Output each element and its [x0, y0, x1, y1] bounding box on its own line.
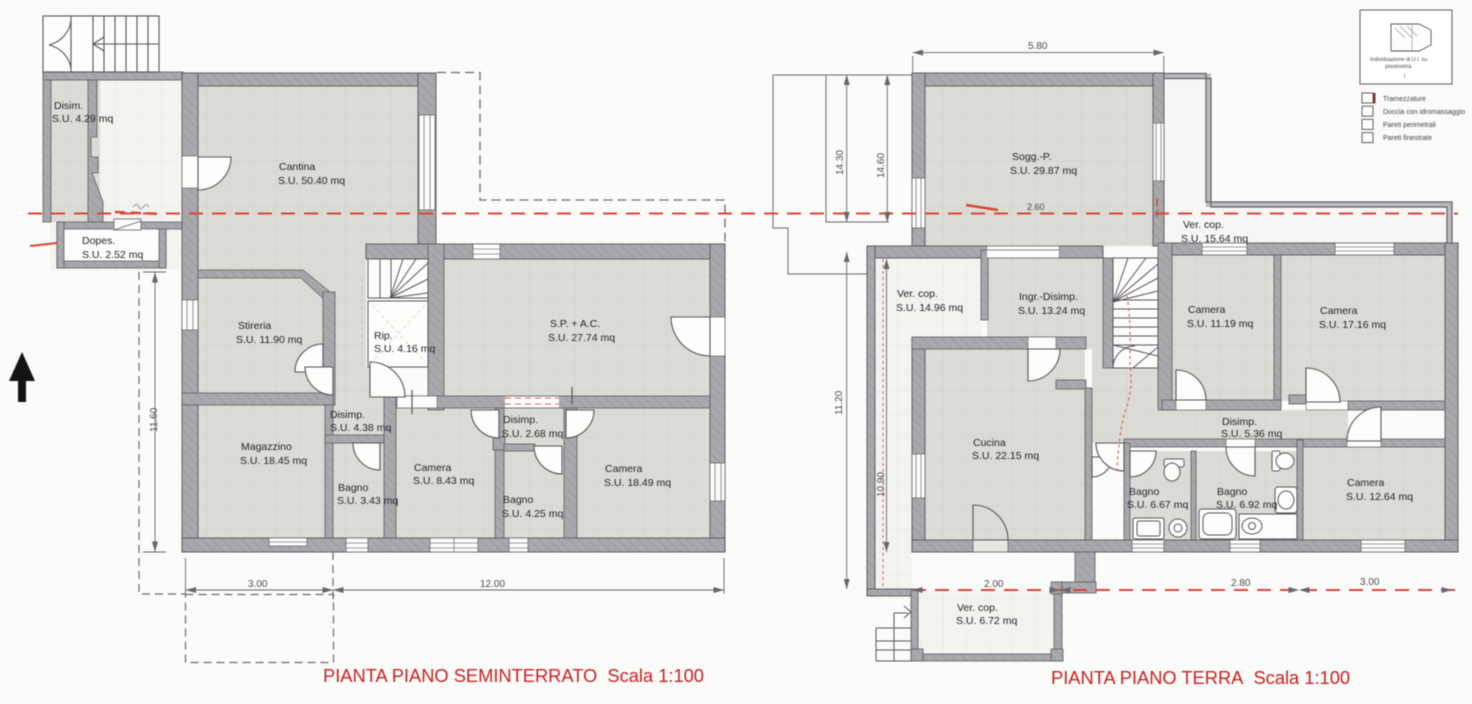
svg-text:S.U. 29.87 mq: S.U. 29.87 mq: [1010, 165, 1077, 177]
svg-text:S.U. 4.29 mq: S.U. 4.29 mq: [52, 113, 113, 125]
svg-text:S.P. + A.C.: S.P. + A.C.: [550, 318, 600, 330]
svg-text:Ingr.-Disimp.: Ingr.-Disimp.: [1019, 291, 1078, 303]
svg-text:S.U. 6.92 mq: S.U. 6.92 mq: [1216, 499, 1277, 511]
svg-text:Camera: Camera: [1188, 304, 1226, 316]
svg-text:10.90: 10.90: [876, 472, 887, 497]
svg-text:S.U. 18.49 mq: S.U. 18.49 mq: [604, 477, 671, 489]
svg-text:S.U. 2.68 mq: S.U. 2.68 mq: [502, 428, 563, 440]
svg-text:planimetria: planimetria: [1385, 64, 1411, 70]
svg-text:PIANTA PIANO SEMINTERRATO Sca: PIANTA PIANO SEMINTERRATO Scala 1:100: [323, 665, 704, 686]
svg-text:11.60: 11.60: [149, 407, 160, 432]
svg-text:Ver. cop.: Ver. cop.: [1183, 219, 1224, 231]
svg-text:Stireria: Stireria: [238, 320, 271, 332]
svg-text:Camera: Camera: [1347, 477, 1385, 489]
svg-text:Ver. cop.: Ver. cop.: [957, 602, 998, 614]
svg-text:S.U. 6.67 mq: S.U. 6.67 mq: [1127, 499, 1188, 511]
svg-text:14.60: 14.60: [876, 153, 887, 178]
svg-text:Magazzino: Magazzino: [241, 441, 292, 453]
svg-text:Disimp.: Disimp.: [503, 414, 538, 426]
svg-text:S.U. 18.45 mq: S.U. 18.45 mq: [240, 455, 307, 467]
svg-text:Camera: Camera: [605, 463, 643, 475]
svg-text:3.00: 3.00: [1360, 577, 1380, 588]
svg-text:Pareti perimetrali: Pareti perimetrali: [1383, 122, 1436, 129]
svg-text:S.U. 17.16 mq: S.U. 17.16 mq: [1319, 319, 1386, 331]
svg-text:Ver. cop.: Ver. cop.: [897, 288, 938, 300]
svg-text:S.U. 13.24 mq: S.U. 13.24 mq: [1018, 305, 1085, 317]
svg-text:2.60: 2.60: [1027, 202, 1045, 212]
svg-text:12.00: 12.00: [480, 579, 505, 590]
svg-text:Cucina: Cucina: [973, 437, 1006, 449]
svg-text:Bagno: Bagno: [338, 482, 369, 494]
svg-text:S.U. 22.15 mq: S.U. 22.15 mq: [972, 450, 1039, 462]
svg-text:Camera: Camera: [1320, 305, 1358, 317]
svg-text:Pareti finestrate: Pareti finestrate: [1383, 135, 1432, 142]
svg-text:2.00: 2.00: [984, 579, 1004, 590]
svg-text:3.00: 3.00: [248, 579, 268, 590]
svg-text:S.U. 6.72 mq: S.U. 6.72 mq: [956, 615, 1017, 627]
svg-text:5.80: 5.80: [1028, 41, 1048, 52]
svg-text:S.U. 11.19 mq: S.U. 11.19 mq: [1187, 318, 1253, 330]
svg-text:Dopes.: Dopes.: [82, 235, 115, 247]
svg-text:Bagno: Bagno: [503, 494, 534, 506]
svg-text:Disim.: Disim.: [54, 100, 83, 112]
svg-text:Bagno: Bagno: [1129, 486, 1160, 498]
svg-text:S.U. 4.38 mq: S.U. 4.38 mq: [330, 422, 391, 434]
svg-text:11.20: 11.20: [834, 390, 845, 415]
svg-text:S.U. 15.64 mq: S.U. 15.64 mq: [1181, 233, 1248, 245]
svg-text:Bagno: Bagno: [1217, 486, 1248, 498]
svg-text:|: |: [1404, 73, 1405, 79]
svg-text:Tramezzature: Tramezzature: [1383, 96, 1426, 103]
svg-text:S.U. 2.52 mq: S.U. 2.52 mq: [82, 249, 143, 261]
svg-text:S.U. 50.40 mq: S.U. 50.40 mq: [278, 175, 345, 187]
svg-text:Disimp.: Disimp.: [1222, 416, 1257, 428]
svg-text:Rip.: Rip.: [374, 330, 393, 342]
svg-text:S.U. 4.16 mq: S.U. 4.16 mq: [374, 343, 435, 355]
svg-text:Cantina: Cantina: [279, 161, 315, 173]
svg-text:S.U. 5.36 mq: S.U. 5.36 mq: [1221, 428, 1282, 440]
svg-text:S.U. 4.25 mq: S.U. 4.25 mq: [502, 508, 563, 520]
svg-text:Individuazione di U.I. su: Individuazione di U.I. su: [1370, 57, 1427, 63]
svg-text:Doccia con idromassaggio: Doccia con idromassaggio: [1383, 109, 1465, 116]
svg-text:S.U. 3.43 mq: S.U. 3.43 mq: [337, 495, 398, 507]
svg-text:S.U. 11.90 mq: S.U. 11.90 mq: [236, 334, 302, 346]
svg-text:Camera: Camera: [414, 462, 452, 474]
svg-text:S.U. 14.96 mq: S.U. 14.96 mq: [896, 302, 963, 314]
svg-text:14.30: 14.30: [835, 150, 846, 175]
svg-text:Sogg.-P.: Sogg.-P.: [1012, 151, 1052, 163]
svg-text:Disimp.: Disimp.: [330, 409, 365, 421]
svg-text:PIANTA PIANO TERRA Scala 1:10: PIANTA PIANO TERRA Scala 1:100: [1051, 667, 1350, 688]
svg-text:S.U. 12.64 mq: S.U. 12.64 mq: [1346, 491, 1413, 503]
svg-text:S.U. 8.43 mq: S.U. 8.43 mq: [413, 475, 474, 487]
svg-text:S.U. 27.74 mq: S.U. 27.74 mq: [548, 332, 615, 344]
svg-text:2.80: 2.80: [1231, 578, 1251, 589]
